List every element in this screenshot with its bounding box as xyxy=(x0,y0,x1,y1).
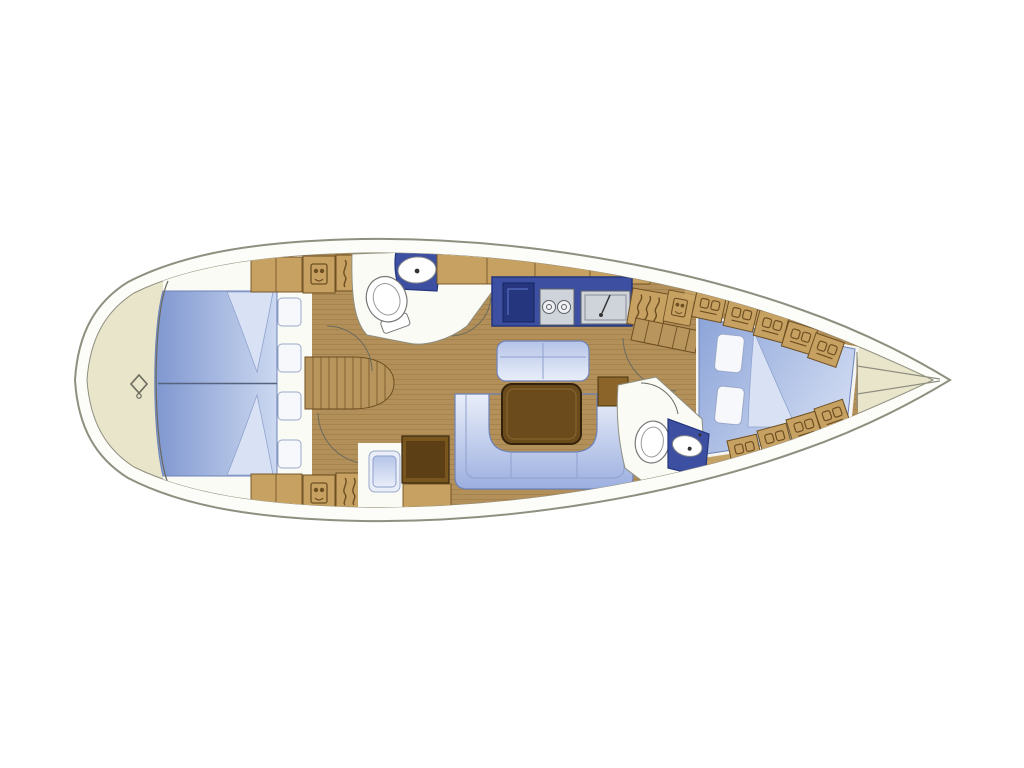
stove-burners-icon xyxy=(540,289,574,325)
saloon-table xyxy=(502,384,581,444)
yacht-floor-plan xyxy=(0,0,1024,768)
pillow-icon xyxy=(278,440,301,468)
pillow-icon xyxy=(278,344,301,372)
floor-plan-canvas xyxy=(0,0,1024,768)
pillow-icon xyxy=(714,386,745,426)
dressing-bench xyxy=(305,357,394,409)
stowage-locker-icon xyxy=(303,256,335,293)
sink-basin-icon xyxy=(581,291,630,324)
bench-settee xyxy=(497,341,589,381)
pillow-icon xyxy=(714,334,745,374)
pillow-icon xyxy=(278,392,301,420)
nav-station xyxy=(358,436,451,510)
cabinet xyxy=(251,257,302,292)
pillow-icon xyxy=(278,298,301,326)
